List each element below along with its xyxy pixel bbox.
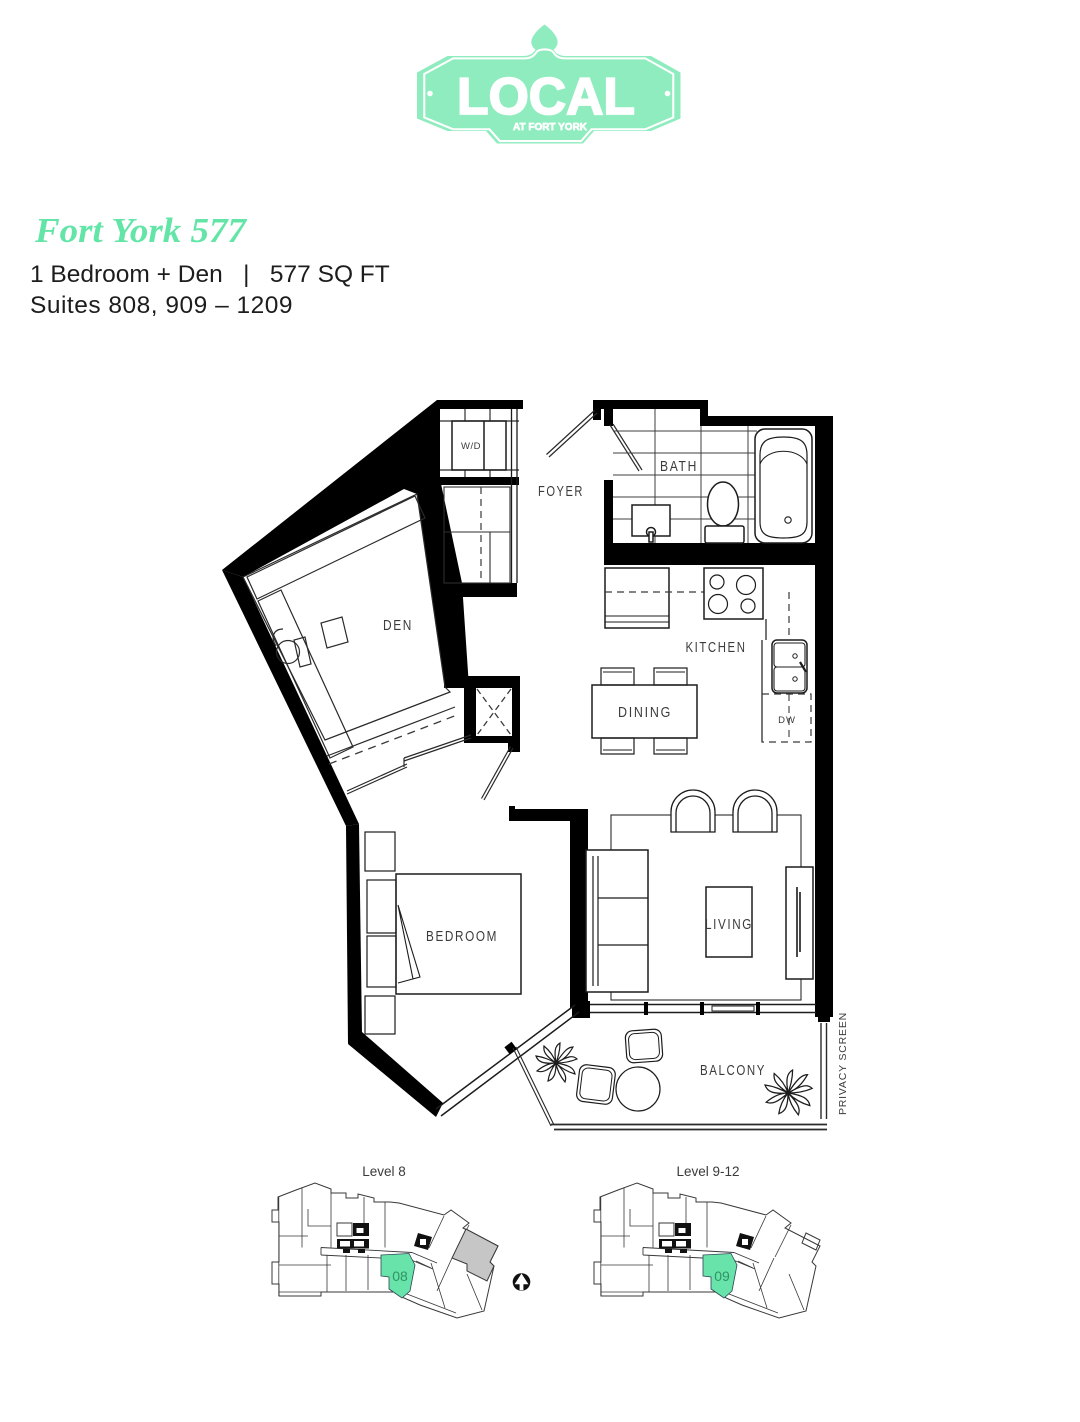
svg-text:BEDROOM: BEDROOM: [426, 929, 498, 945]
svg-text:DINING: DINING: [618, 705, 672, 721]
svg-text:BALCONY: BALCONY: [700, 1063, 766, 1079]
svg-text:AT FORT YORK: AT FORT YORK: [513, 121, 587, 133]
svg-text:FOYER: FOYER: [538, 484, 584, 500]
svg-text:Fort York 577: Fort York 577: [34, 212, 248, 250]
svg-text:LOCAL: LOCAL: [457, 68, 635, 126]
svg-text:1 Bedroom + Den | 577 SQ F: 1 Bedroom + Den | 577 SQ FT: [30, 261, 390, 288]
svg-text:Level 8: Level 8: [362, 1164, 406, 1179]
svg-text:PRIVACY SCREEN: PRIVACY SCREEN: [837, 1012, 849, 1115]
svg-text:09: 09: [714, 1268, 730, 1284]
svg-text:DW: DW: [778, 715, 796, 726]
svg-text:Suites 808, 909 – 1209: Suites 808, 909 – 1209: [30, 292, 293, 319]
svg-text:LIVING: LIVING: [705, 917, 753, 933]
svg-text:BATH: BATH: [660, 459, 698, 475]
svg-text:W/D: W/D: [461, 441, 481, 452]
svg-text:DEN: DEN: [383, 618, 413, 634]
svg-text:KITCHEN: KITCHEN: [686, 640, 747, 656]
svg-text:08: 08: [392, 1268, 408, 1284]
svg-text:Level 9-12: Level 9-12: [676, 1164, 739, 1179]
